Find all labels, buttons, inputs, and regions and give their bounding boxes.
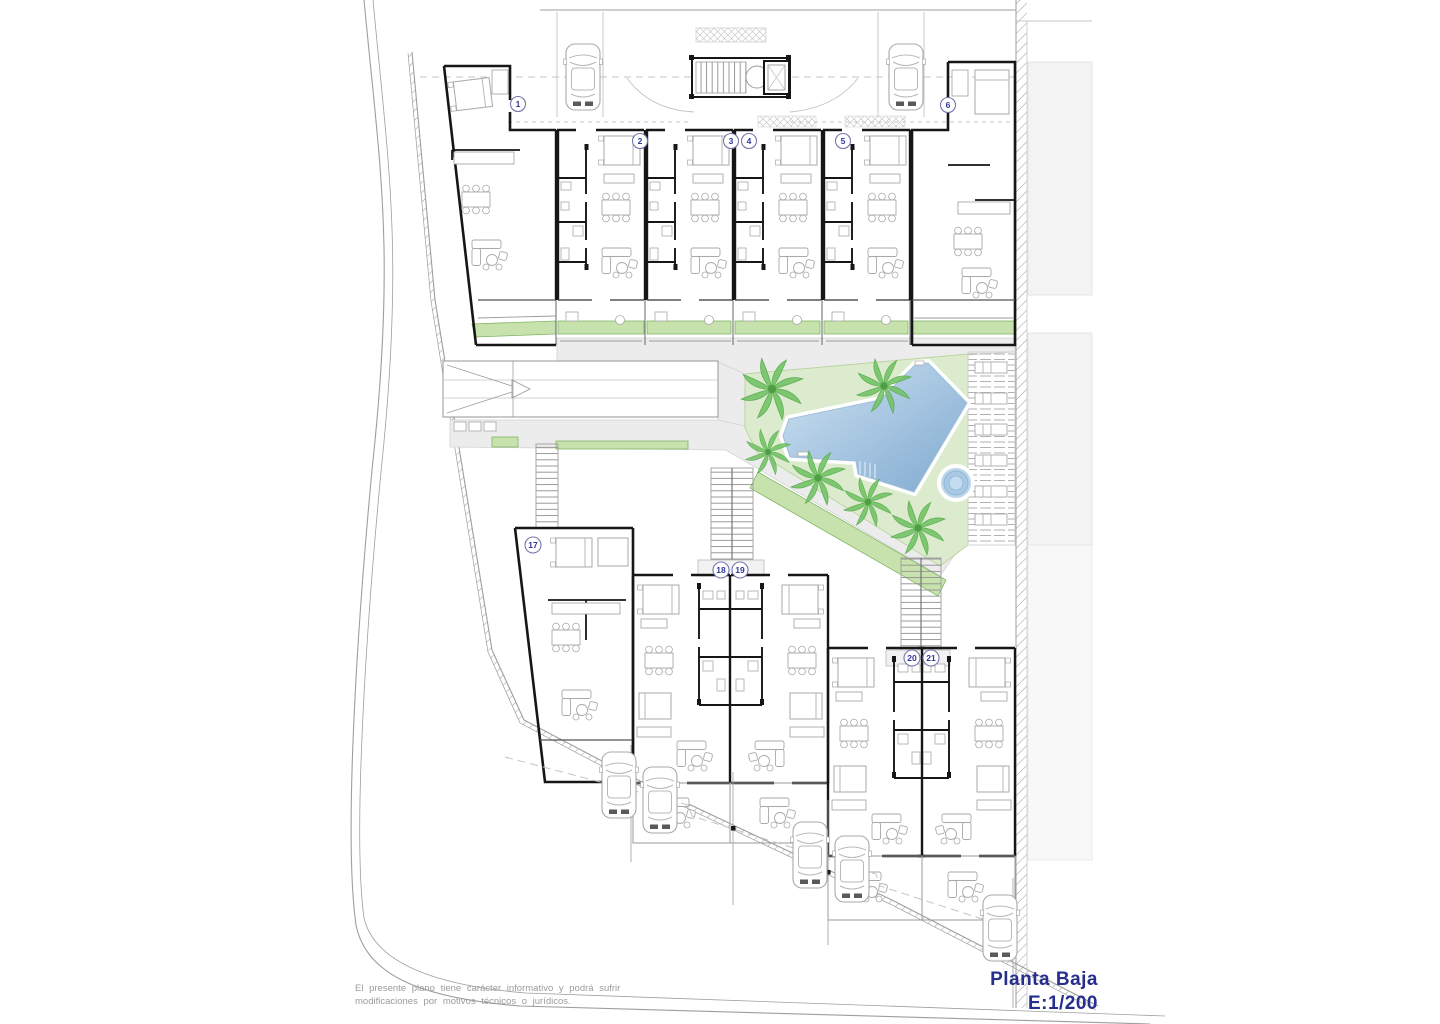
unit-badge-label: 1 — [516, 99, 521, 109]
unit-badge: 20 — [904, 650, 920, 666]
unit-badge-label: 17 — [528, 540, 538, 550]
unit-badge-label: 3 — [729, 136, 734, 146]
unit-badge-label: 6 — [946, 100, 951, 110]
unit-1 — [444, 66, 556, 345]
unit-17 — [515, 528, 633, 782]
plan-scale: E:1/200 — [1028, 993, 1098, 1014]
unit-18 — [633, 575, 730, 783]
entry-canopy — [696, 28, 766, 42]
unit-badge-label: 2 — [638, 136, 643, 146]
unit-21 — [918, 648, 1015, 856]
staircase-units20-21 — [886, 558, 950, 666]
pool-ladder — [915, 361, 924, 365]
unit-badge-label: 5 — [841, 136, 846, 146]
unit-badge-label: 19 — [735, 565, 745, 575]
plan-title: Planta Baja — [990, 969, 1098, 990]
unit-badge-label: 21 — [926, 653, 936, 663]
sun-deck — [968, 352, 1015, 545]
unit-badge: 4 — [742, 134, 757, 149]
disclaimer-line-1: El presente plano tiene carácter informa… — [355, 983, 620, 994]
staircase-top — [689, 55, 791, 99]
neighbor-parcel — [1016, 0, 1092, 1008]
unit-badge: 3 — [724, 134, 739, 149]
unit-badge: 1 — [511, 97, 526, 112]
floor-plan-canvas: 1 2 3 4 5 6 17 18 19 20 21 Planta Baja E… — [0, 0, 1440, 1024]
unit-badge-label: 20 — [907, 653, 917, 663]
floor-plan-page: 1 2 3 4 5 6 17 18 19 20 21 Planta Baja E… — [0, 0, 1440, 1024]
bottom-parking — [505, 745, 1019, 1008]
top-building-row — [444, 62, 1015, 345]
disclaimer-line-2: modificaciones por motivos técnicos o ju… — [355, 996, 571, 1007]
staircase-unit17 — [536, 444, 558, 528]
jacuzzi — [939, 466, 973, 500]
unit-badge-label: 4 — [747, 136, 752, 146]
unit-badge: 6 — [941, 98, 956, 113]
title-block: Planta Baja E:1/200 — [990, 969, 1098, 1014]
unit-badge: 17 — [525, 537, 541, 553]
unit-badge: 19 — [732, 562, 748, 578]
unit-badge: 2 — [633, 134, 648, 149]
unit-badge: 5 — [836, 134, 851, 149]
unit-19 — [731, 575, 828, 783]
unit-20 — [828, 648, 925, 856]
unit-6 — [912, 62, 1015, 345]
unit-badge: 21 — [923, 650, 939, 666]
unit-badge-label: 18 — [716, 565, 726, 575]
unit-badge: 18 — [713, 562, 729, 578]
